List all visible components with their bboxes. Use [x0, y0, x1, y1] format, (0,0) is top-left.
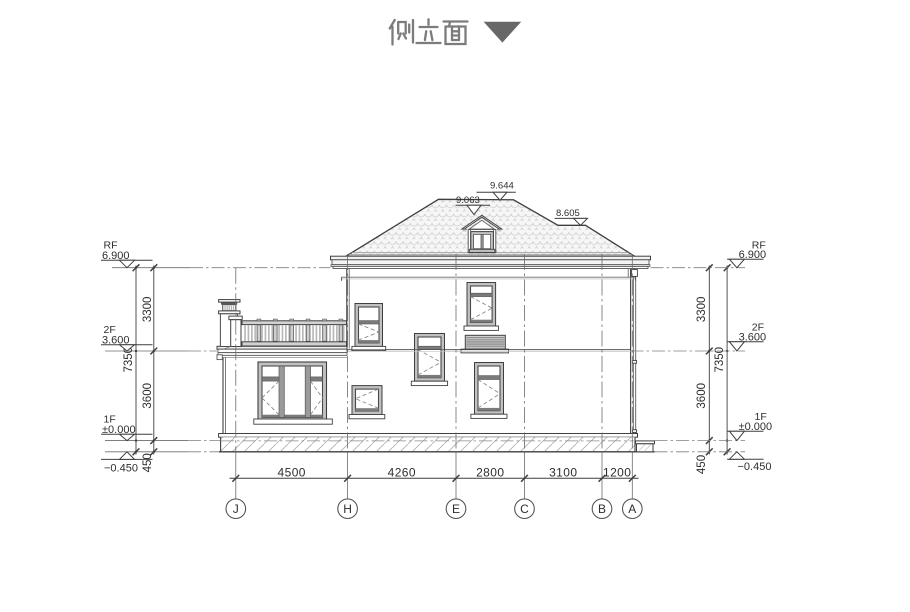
svg-text:4500: 4500: [278, 466, 306, 480]
svg-text:7350: 7350: [123, 347, 135, 373]
svg-text:450: 450: [696, 455, 708, 474]
svg-text:A: A: [628, 502, 636, 516]
svg-text:E: E: [452, 502, 460, 516]
svg-text:3300: 3300: [696, 297, 708, 323]
svg-text:2800: 2800: [476, 466, 504, 480]
svg-text:3100: 3100: [549, 466, 577, 480]
svg-text:H: H: [343, 502, 352, 516]
svg-text:B: B: [598, 502, 606, 516]
svg-text:4260: 4260: [388, 466, 416, 480]
svg-text:−0.450: −0.450: [738, 461, 772, 473]
svg-text:3600: 3600: [696, 383, 708, 409]
svg-text:J: J: [233, 502, 239, 516]
svg-text:8.605: 8.605: [556, 208, 580, 219]
svg-text:9.644: 9.644: [490, 180, 514, 191]
svg-text:1200: 1200: [603, 466, 631, 480]
svg-text:7350: 7350: [714, 347, 726, 373]
svg-text:3300: 3300: [142, 297, 154, 323]
svg-text:9.063: 9.063: [456, 195, 480, 206]
svg-text:C: C: [520, 502, 529, 516]
svg-text:3600: 3600: [142, 383, 154, 409]
svg-text:−0.450: −0.450: [104, 463, 138, 475]
svg-text:450: 450: [142, 453, 154, 472]
